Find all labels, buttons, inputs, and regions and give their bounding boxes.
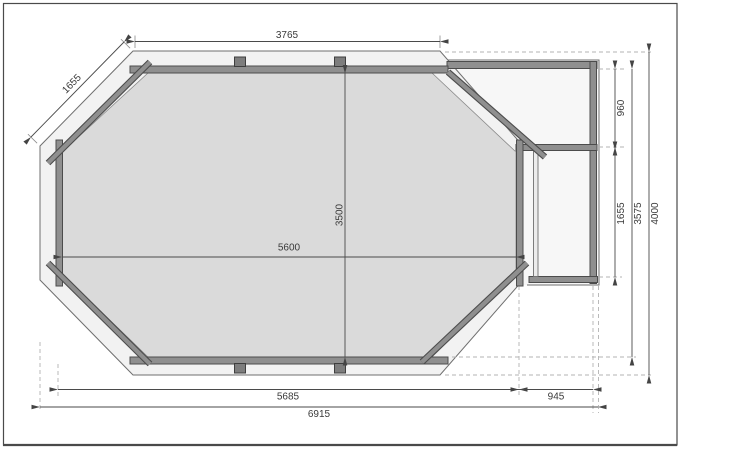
dimension-total-height: 4000: [649, 52, 661, 375]
left-wall: [56, 140, 63, 286]
dimension-annex-upper-height: 960: [615, 69, 627, 147]
dimension-label: 3500: [335, 203, 346, 226]
dimension-right-height: 3575: [632, 69, 644, 357]
dimension-label: 3575: [633, 202, 644, 225]
dimension-label: 1655: [616, 202, 627, 225]
pool-interior: [62, 73, 516, 357]
support-block: [235, 57, 246, 67]
dimension-annex-lower-height: 1655: [615, 150, 627, 277]
support-block: [335, 57, 346, 67]
dimension-label: 945: [548, 392, 565, 403]
annex-top-wall: [447, 62, 597, 69]
dimension-annex-width: 945: [519, 390, 593, 403]
floor-plan-canvas: 3765 1655 5600 3500 960 1655 3575 4000: [0, 0, 750, 449]
dimension-label: 6915: [308, 409, 331, 420]
dimension-label: 5685: [277, 392, 300, 403]
annex-inner-wall: [534, 151, 539, 277]
top-wall: [130, 66, 448, 73]
dimension-label: 1655: [60, 72, 84, 96]
dimension-total-width: 6915: [40, 407, 598, 420]
dimension-bottom-width: 5685: [58, 390, 519, 403]
dimension-label: 4000: [650, 202, 661, 225]
dimension-label: 3765: [276, 30, 299, 41]
annex-right-wall: [590, 62, 597, 284]
dimension-label: 960: [616, 99, 627, 116]
support-block: [335, 364, 346, 374]
dimension-label: 5600: [278, 243, 301, 254]
annex-bottom-wall: [529, 277, 598, 283]
floor-plan: 3765 1655 5600 3500 960 1655 3575 4000: [0, 0, 750, 449]
support-block: [235, 364, 246, 374]
dimension-top-width: 3765: [135, 30, 440, 42]
bottom-wall: [130, 357, 448, 364]
